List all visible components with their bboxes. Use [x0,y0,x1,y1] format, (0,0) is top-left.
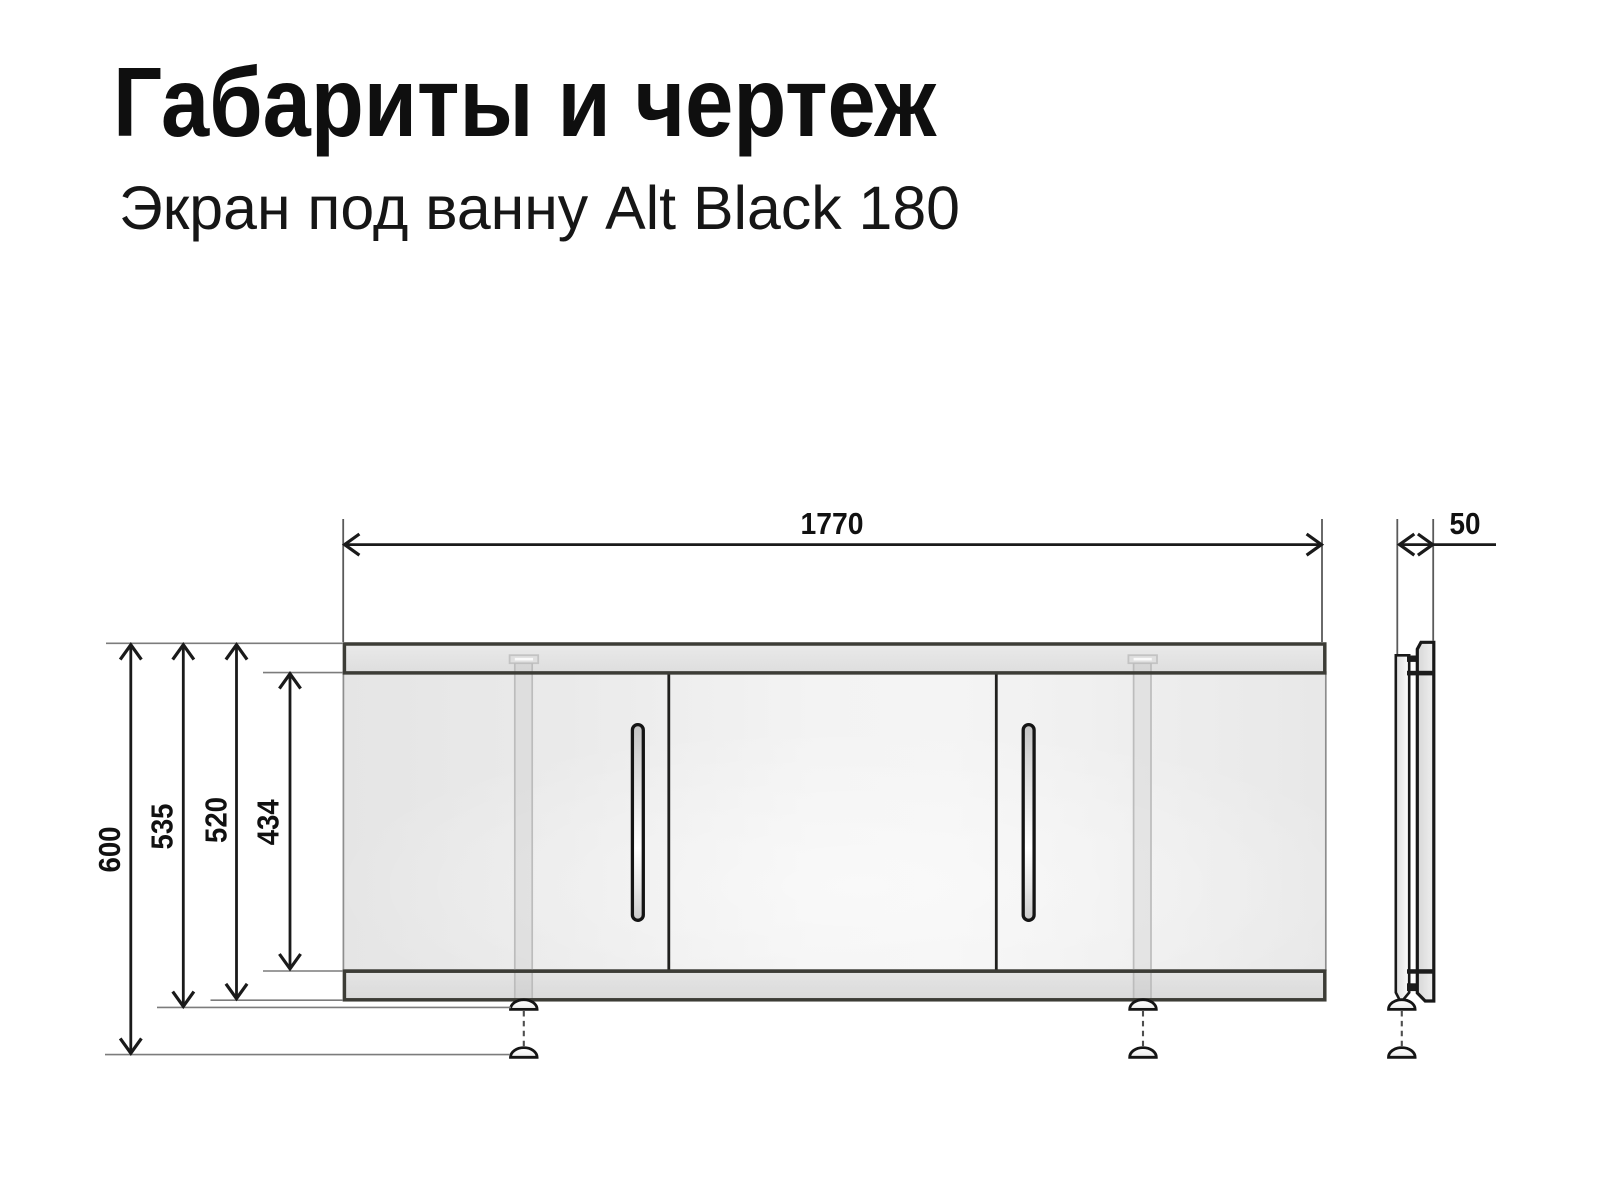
svg-text:600: 600 [92,827,127,873]
svg-text:1770: 1770 [801,506,864,541]
svg-text:434: 434 [251,799,286,846]
svg-text:535: 535 [145,804,180,850]
svg-text:520: 520 [199,797,234,843]
svg-text:Габариты и чертеж: Габариты и чертеж [113,47,937,157]
svg-text:Экран под ванну Alt Black 180: Экран под ванну Alt Black 180 [119,174,960,242]
svg-text:50: 50 [1450,506,1481,541]
